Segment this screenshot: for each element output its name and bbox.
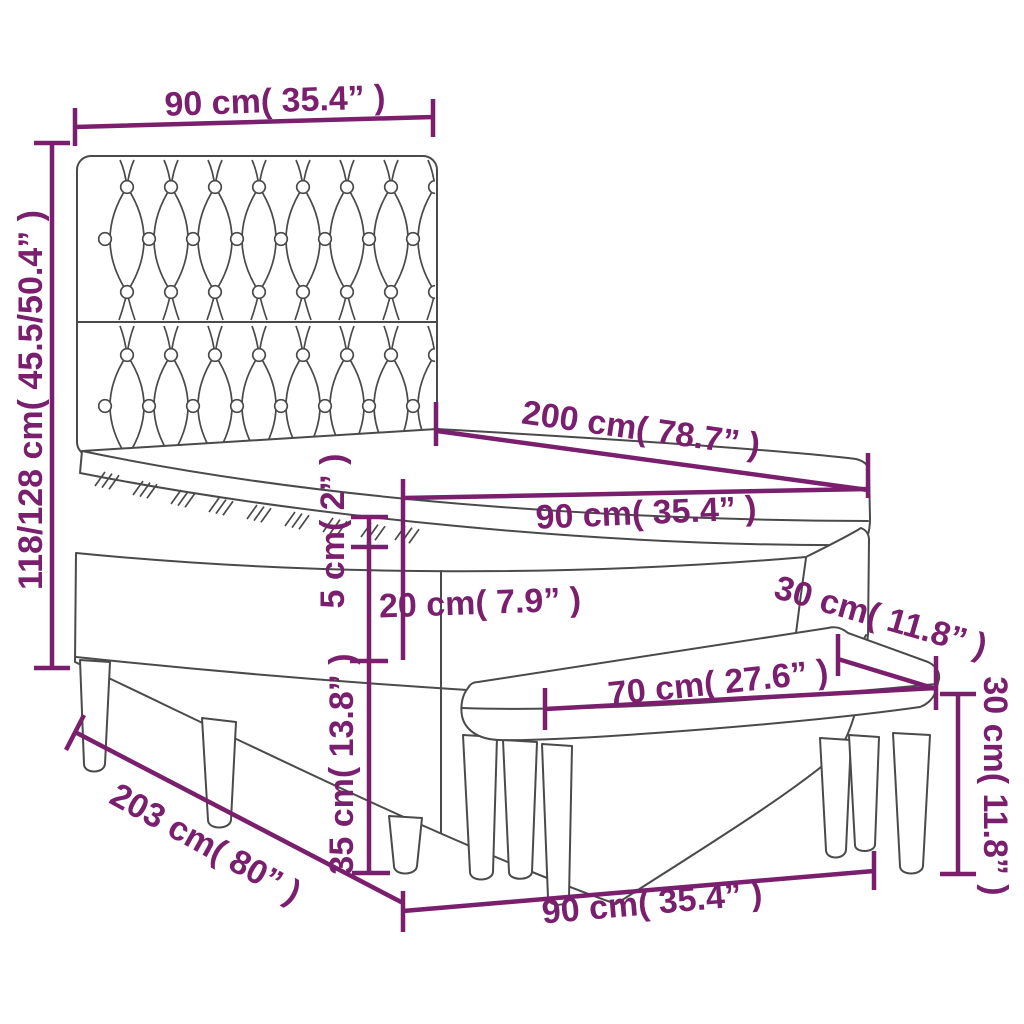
bed-dimension-diagram: 90 cm( 35.4” ) 118/128 cm( 45.5/50.4” ) …: [0, 0, 1024, 1024]
dim-bench-height-label: 30 cm( 11.8” ): [976, 676, 1014, 895]
diagram-canvas: 90 cm( 35.4” ) 118/128 cm( 45.5/50.4” ) …: [0, 0, 1024, 1024]
dim-base-height-label: 35 cm( 13.8” ): [323, 653, 361, 874]
dim-total-length-label: 203 cm( 80” ): [104, 776, 308, 912]
bench-leg: [463, 735, 497, 880]
bench-leg: [849, 735, 879, 851]
bed-line-art: [75, 156, 939, 905]
headboard: [77, 156, 452, 472]
bed-leg: [820, 738, 851, 858]
dim-headboard-width-label: 90 cm( 35.4” ): [164, 78, 386, 124]
dim-mattress-height-label: 20 cm( 7.9” ): [378, 580, 581, 625]
bench-leg: [893, 733, 930, 874]
dim-bench-height: 30 cm( 11.8” ): [940, 676, 1014, 895]
dim-topper-thickness-label: 5 cm( 2” ): [314, 454, 352, 609]
dim-total-height: 118/128 cm( 45.5/50.4” ): [12, 143, 70, 668]
bench-leg: [503, 740, 537, 879]
dim-total-height-label: 118/128 cm( 45.5/50.4” ): [12, 210, 50, 590]
bench-leg: [542, 744, 572, 905]
bed-leg: [389, 816, 422, 874]
dim-headboard-width: 90 cm( 35.4” ): [75, 78, 433, 146]
